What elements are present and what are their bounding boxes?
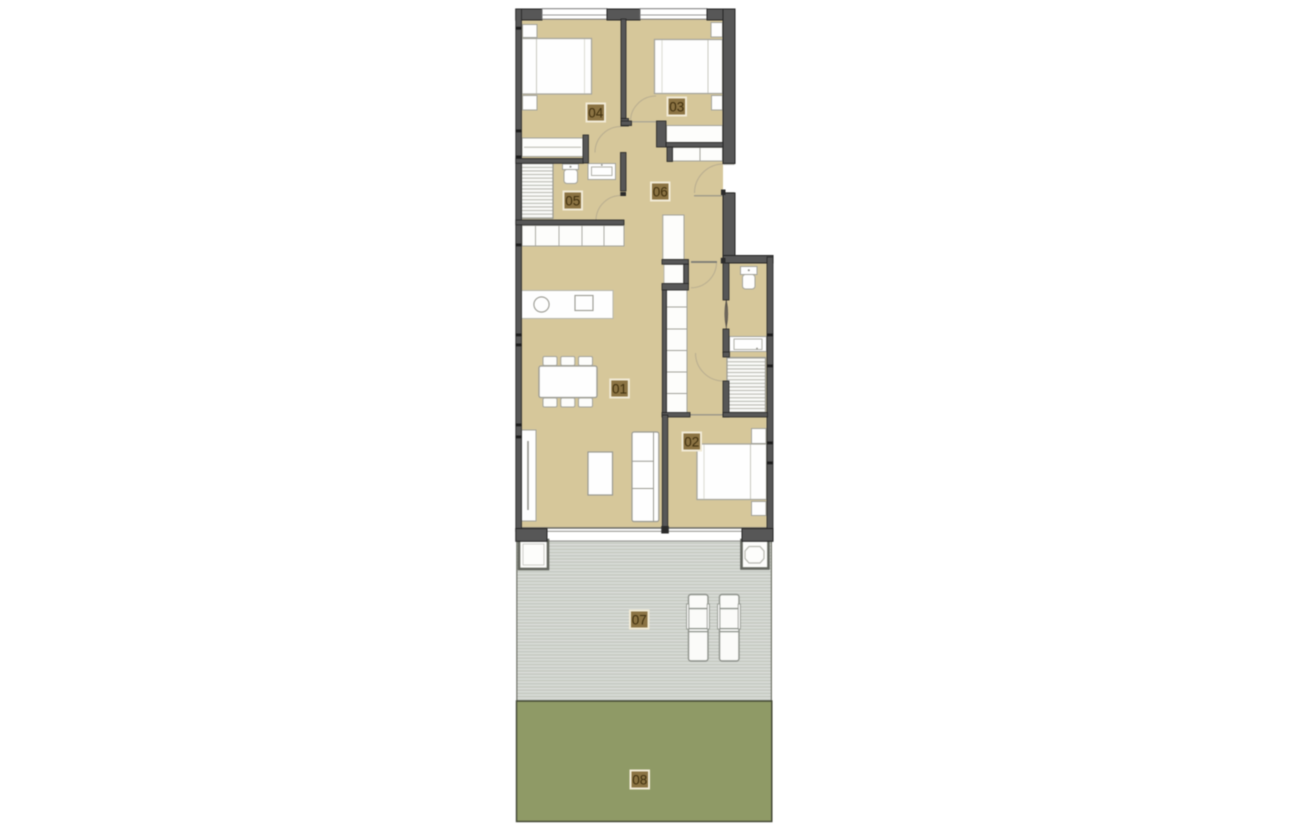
- svg-text:01: 01: [612, 381, 627, 396]
- svg-text:07: 07: [632, 612, 647, 627]
- svg-text:06: 06: [653, 184, 668, 199]
- svg-text:02: 02: [684, 434, 699, 449]
- svg-text:03: 03: [669, 99, 684, 114]
- svg-text:04: 04: [588, 105, 604, 120]
- svg-text:05: 05: [565, 193, 580, 208]
- svg-text:08: 08: [632, 772, 647, 787]
